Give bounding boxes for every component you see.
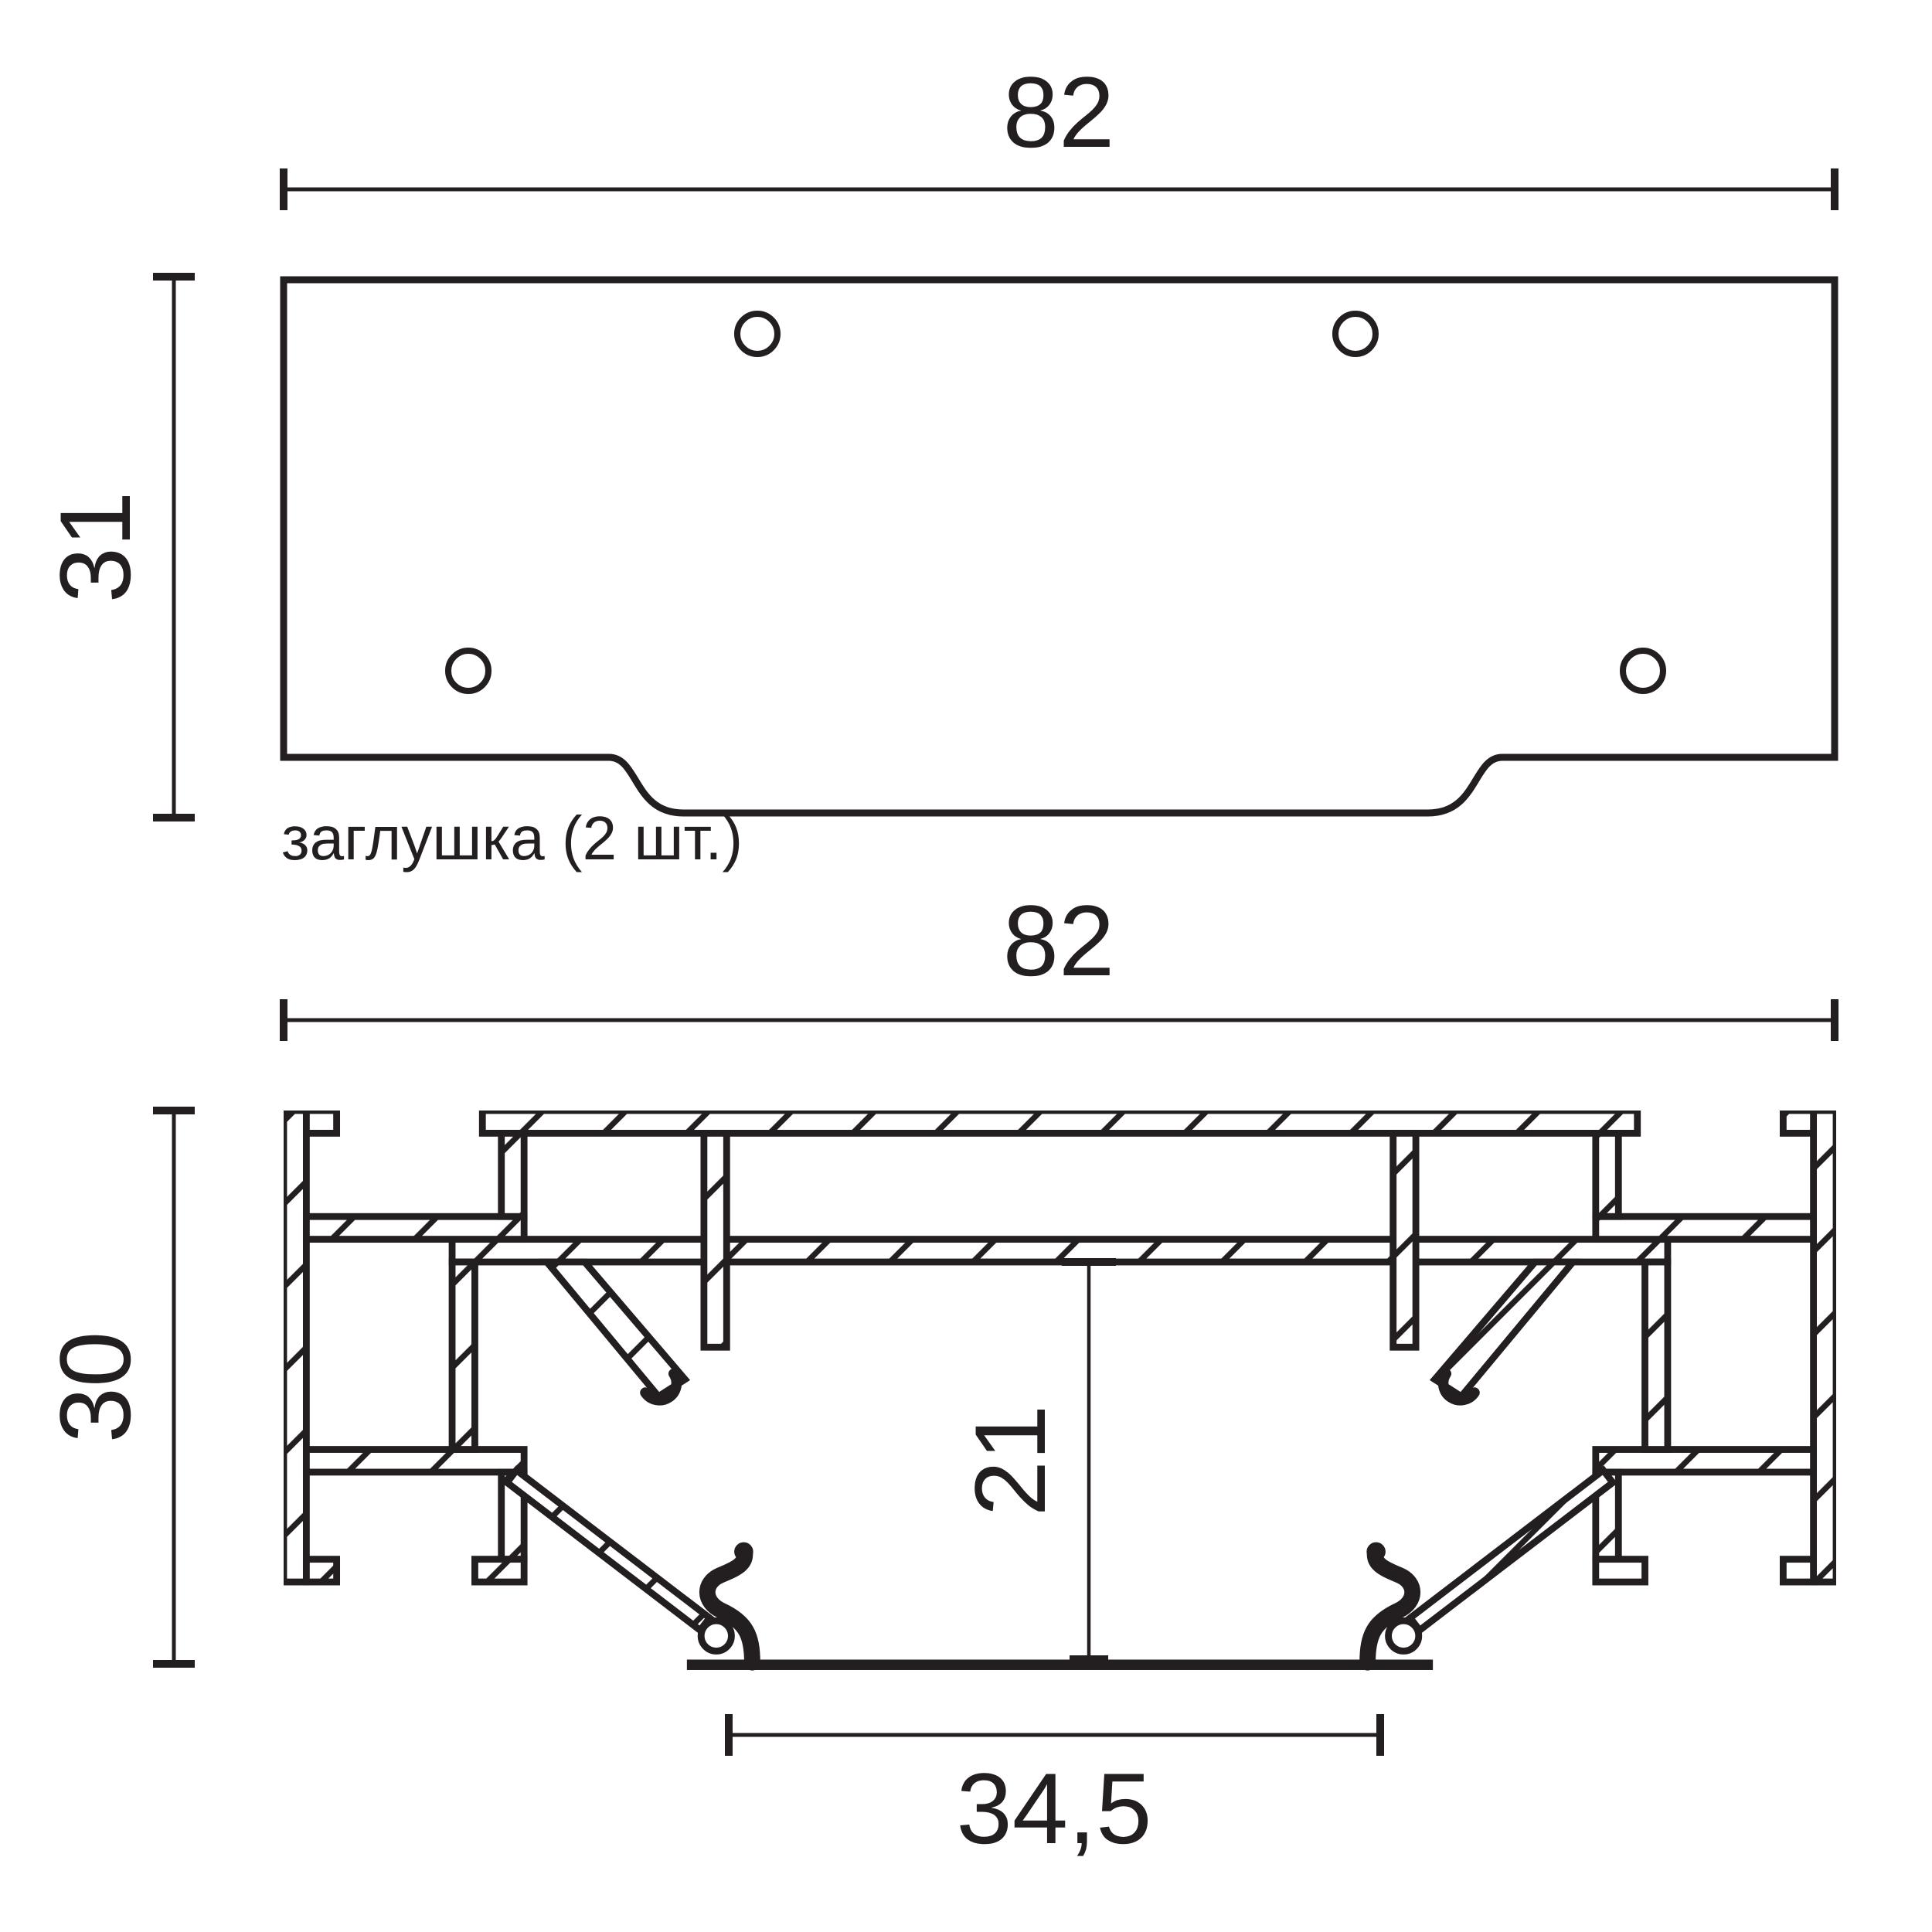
profile-right-half [1389,1111,1836,1651]
right-top-lip [1783,1111,1813,1133]
dim-width-top-label: 82 [1003,56,1115,168]
dim-width-bottom-label: 82 [1003,884,1115,997]
right-outer-wall [1814,1111,1836,1582]
left-spring-bulb [701,1621,731,1651]
dim-inner-height-label: 21 [954,1405,1066,1517]
left-lower-spring-arm [507,1471,709,1631]
dim-opening-width-label: 34,5 [956,1752,1151,1865]
left-upper-post [502,1133,524,1216]
right-upper-rib [1596,1216,1814,1239]
screw-hole-top-left [737,314,777,354]
right-seal-hook-tip [1366,1543,1386,1562]
left-top-lip [306,1111,336,1133]
left-outer-wall [284,1111,306,1582]
left-upper-spring-arm [547,1262,685,1396]
dim-profile-height-line [153,1111,195,1664]
right-lower-rib [1596,1450,1814,1472]
left-seal-hook-tip [734,1543,753,1562]
aluminium-body [284,1111,1836,1651]
right-upper-post [1596,1133,1618,1216]
dim-height-left-label: 31 [39,492,151,604]
top-wall [482,1111,1638,1133]
right-center-post [1393,1133,1416,1347]
left-bottom-lip [306,1560,336,1582]
left-upper-rib [306,1216,524,1239]
technical-drawing-canvas: 82 31 заглушка (2 шт.) 82 [0,0,1932,1932]
right-inner-post [1645,1262,1668,1450]
right-spring-bulb [1389,1621,1419,1651]
left-lower-rib [306,1450,524,1472]
end-cap-outline [284,280,1835,813]
left-center-post [704,1133,726,1347]
dim-width-top-line [284,168,1835,210]
left-inner-post [452,1262,474,1450]
screw-hole-bottom-right [1623,651,1663,691]
profile-left-half [284,1111,731,1651]
end-cap-caption: заглушка (2 шт.) [281,804,743,872]
dim-profile-height-label: 30 [39,1332,151,1444]
drawing-sheet: 82 31 заглушка (2 шт.) 82 [0,0,1932,1932]
right-lower-spring-arm [1410,1471,1613,1631]
seal-gaskets [707,1543,1412,1663]
dim-opening-width-line [729,1714,1380,1756]
end-cap-view: 82 31 заглушка (2 шт.) [39,56,1835,872]
right-upper-spring-arm [1435,1262,1573,1396]
right-bottom-lip [1783,1560,1813,1582]
bottom-cover-line [687,1660,1433,1670]
screw-hole-top-right [1335,314,1376,354]
dim-inner-height-line [1062,1262,1116,1659]
profile-section-view: 82 30 [39,884,1836,1865]
dim-width-bottom-line [284,999,1835,1041]
profile-cross-section [284,1111,1836,1670]
screw-hole-bottom-left [448,651,488,691]
middle-wall [452,1240,1668,1262]
right-foot [1596,1560,1645,1582]
dim-height-left-line [153,277,195,818]
left-foot [474,1560,524,1582]
